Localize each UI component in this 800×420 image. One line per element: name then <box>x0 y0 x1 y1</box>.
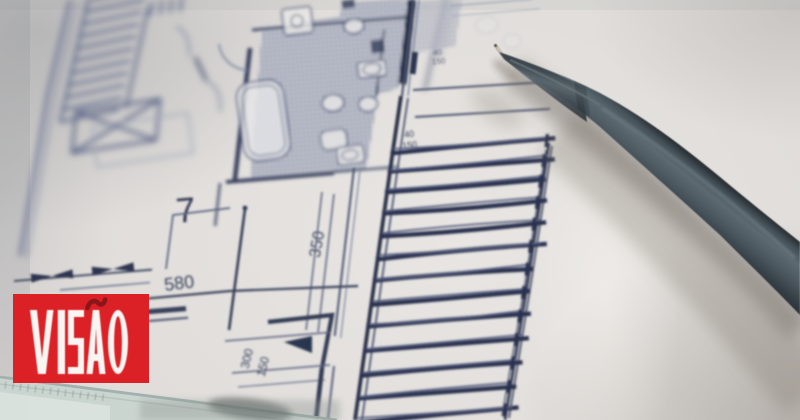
svg-text:7: 7 <box>174 190 197 231</box>
svg-text:580: 580 <box>163 271 195 295</box>
svg-text:150: 150 <box>432 56 447 66</box>
svg-text:40: 40 <box>404 129 415 140</box>
